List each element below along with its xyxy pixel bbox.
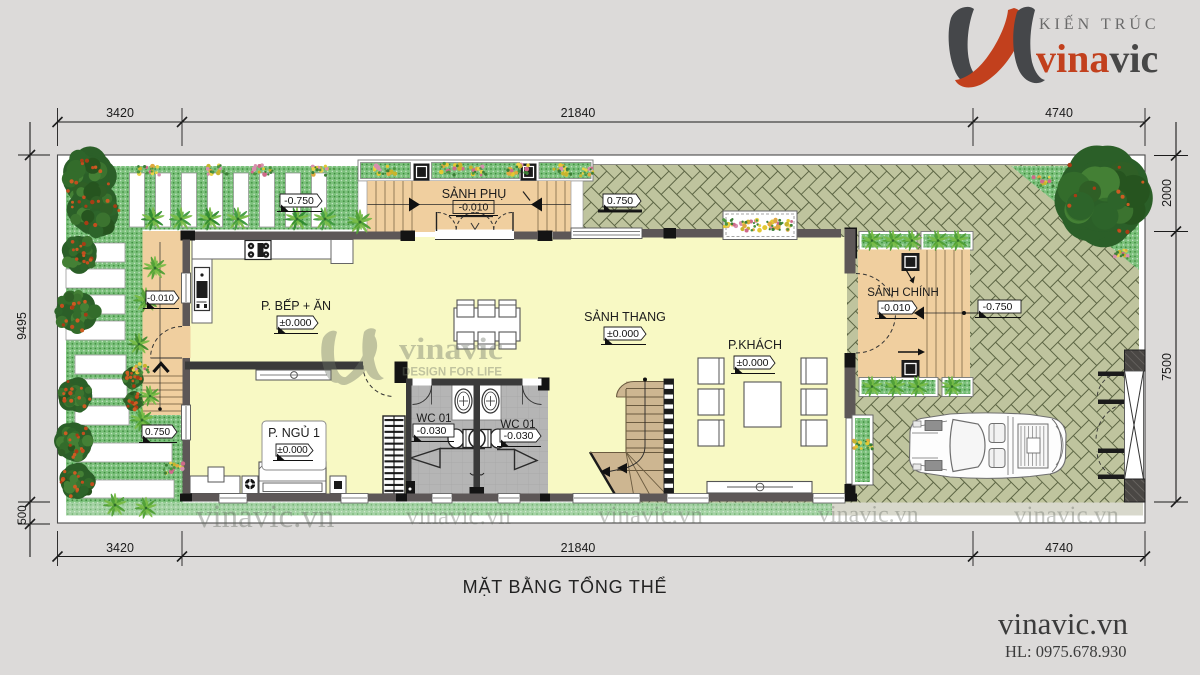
- svg-text:vinavic: vinavic: [1036, 36, 1158, 81]
- svg-text:±0.000: ±0.000: [607, 328, 639, 340]
- svg-text:DESIGN FOR LIFE: DESIGN FOR LIFE: [402, 365, 502, 379]
- svg-text:SẢNH CHÍNH: SẢNH CHÍNH: [867, 286, 939, 299]
- svg-text:3420: 3420: [106, 541, 134, 555]
- svg-text:9495: 9495: [15, 312, 29, 340]
- svg-text:21840: 21840: [561, 541, 596, 555]
- svg-text:WC 01: WC 01: [416, 413, 451, 425]
- svg-text:-0.750: -0.750: [983, 301, 1013, 313]
- svg-text:7500: 7500: [1160, 353, 1174, 381]
- svg-text:vinavic.vn: vinavic.vn: [598, 502, 703, 529]
- svg-text:-0.010: -0.010: [147, 293, 174, 304]
- svg-text:vinavic.vn: vinavic.vn: [406, 503, 511, 530]
- svg-text:vinavic: vinavic: [399, 331, 503, 366]
- svg-text:0.750: 0.750: [607, 195, 633, 207]
- svg-text:MẶT BẰNG TỔNG THỂ: MẶT BẰNG TỔNG THỂ: [463, 576, 668, 597]
- svg-text:P. NGỦ 1: P. NGỦ 1: [268, 425, 320, 440]
- svg-text:-0.030: -0.030: [417, 425, 447, 437]
- svg-text:P.KHÁCH: P.KHÁCH: [728, 337, 782, 352]
- svg-text:SẢNH THANG: SẢNH THANG: [584, 309, 666, 324]
- svg-text:4740: 4740: [1045, 106, 1073, 120]
- svg-text:SẢNH PHỤ: SẢNH PHỤ: [442, 186, 507, 201]
- svg-text:0.750: 0.750: [145, 427, 170, 438]
- svg-text:4740: 4740: [1045, 541, 1073, 555]
- svg-text:KIẾN TRÚC: KIẾN TRÚC: [1039, 14, 1160, 33]
- svg-text:±0.000: ±0.000: [277, 445, 308, 456]
- svg-text:21840: 21840: [561, 106, 596, 120]
- svg-text:P. BẾP + ĂN: P. BẾP + ĂN: [261, 298, 331, 313]
- svg-text:-0.010: -0.010: [459, 202, 489, 214]
- svg-text:±0.000: ±0.000: [279, 317, 311, 329]
- svg-text:±0.000: ±0.000: [736, 357, 768, 369]
- svg-text:vinavic.vn: vinavic.vn: [1014, 502, 1119, 529]
- svg-text:3420: 3420: [106, 106, 134, 120]
- svg-text:HL: 0975.678.930: HL: 0975.678.930: [1005, 642, 1126, 661]
- svg-text:vinavic.vn: vinavic.vn: [998, 606, 1128, 641]
- svg-text:-0.030: -0.030: [504, 430, 534, 442]
- svg-text:-0.750: -0.750: [284, 195, 314, 207]
- svg-text:2000: 2000: [1160, 179, 1174, 207]
- svg-text:500: 500: [17, 505, 29, 524]
- svg-text:vinavic.vn: vinavic.vn: [196, 499, 334, 535]
- svg-text:vinavic.vn: vinavic.vn: [818, 502, 919, 528]
- svg-text:-0.010: -0.010: [881, 302, 911, 314]
